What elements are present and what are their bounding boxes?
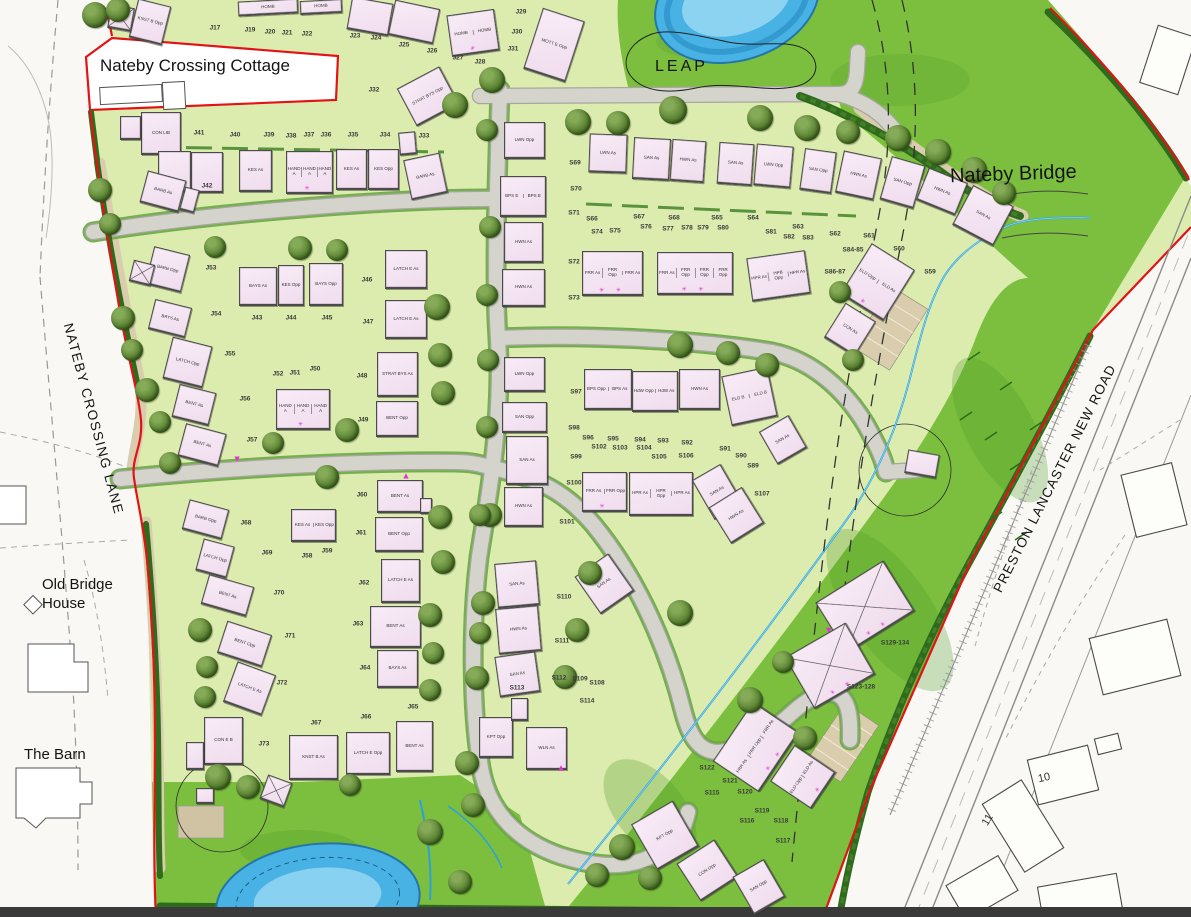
- label-nateby-crossing-cottage: Nateby Crossing Cottage: [100, 56, 290, 76]
- site-plan: KNST B OppHOMBHOMBHOMBHOMB✳MOTT E OppCON…: [0, 0, 1191, 917]
- label-nateby-bridge: Nateby Bridge: [950, 161, 1077, 188]
- site-plan-drawing: [0, 0, 1191, 917]
- label-the-barn: The Barn: [24, 746, 86, 763]
- label-building-10: 10: [1037, 771, 1051, 785]
- label-leap: LEAP: [655, 58, 708, 76]
- label-old-bridge-house: Old Bridge House: [42, 576, 126, 614]
